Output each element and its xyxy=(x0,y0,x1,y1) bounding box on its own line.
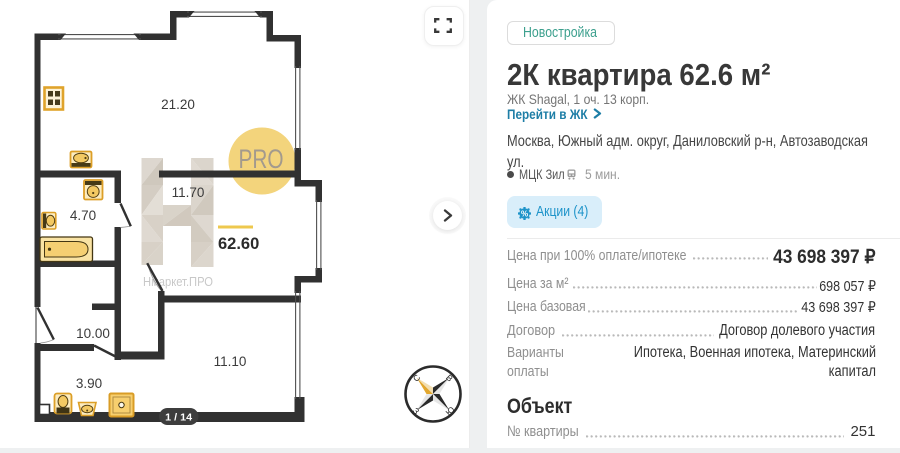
svg-text:11.70: 11.70 xyxy=(172,185,205,200)
svg-text:62.60: 62.60 xyxy=(218,235,259,253)
svg-text:1 / 14: 1 / 14 xyxy=(165,412,192,424)
svg-text:PRO: PRO xyxy=(239,144,284,174)
svg-text:3.90: 3.90 xyxy=(76,376,102,391)
svg-text:10.00: 10.00 xyxy=(76,326,110,341)
svg-text:11.10: 11.10 xyxy=(214,354,247,369)
svg-text:%: % xyxy=(521,209,528,218)
svg-text:4.70: 4.70 xyxy=(70,208,96,223)
svg-text:21.20: 21.20 xyxy=(161,97,195,112)
